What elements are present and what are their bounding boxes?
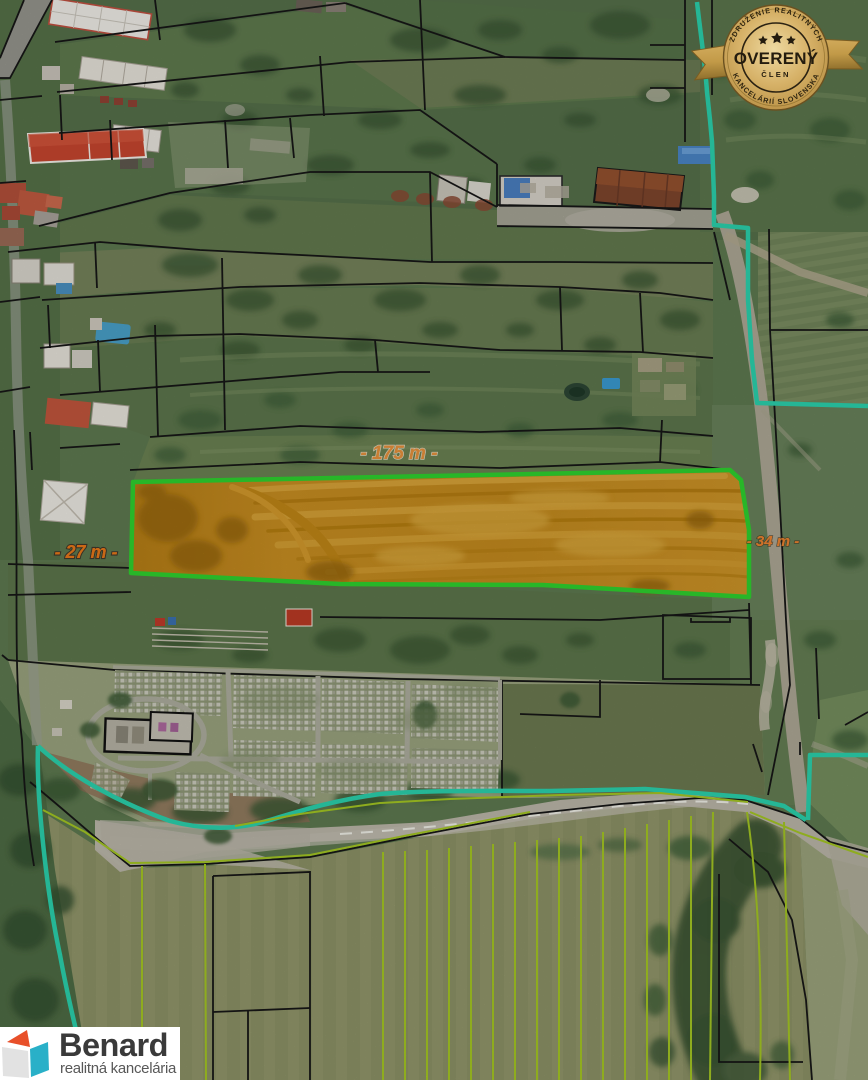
svg-text:OVERENÝ: OVERENÝ — [734, 49, 819, 68]
svg-text:ČLEN: ČLEN — [761, 70, 790, 79]
svg-text:Benard: Benard — [59, 1027, 168, 1063]
svg-text:realitná kancelária: realitná kancelária — [60, 1060, 177, 1077]
